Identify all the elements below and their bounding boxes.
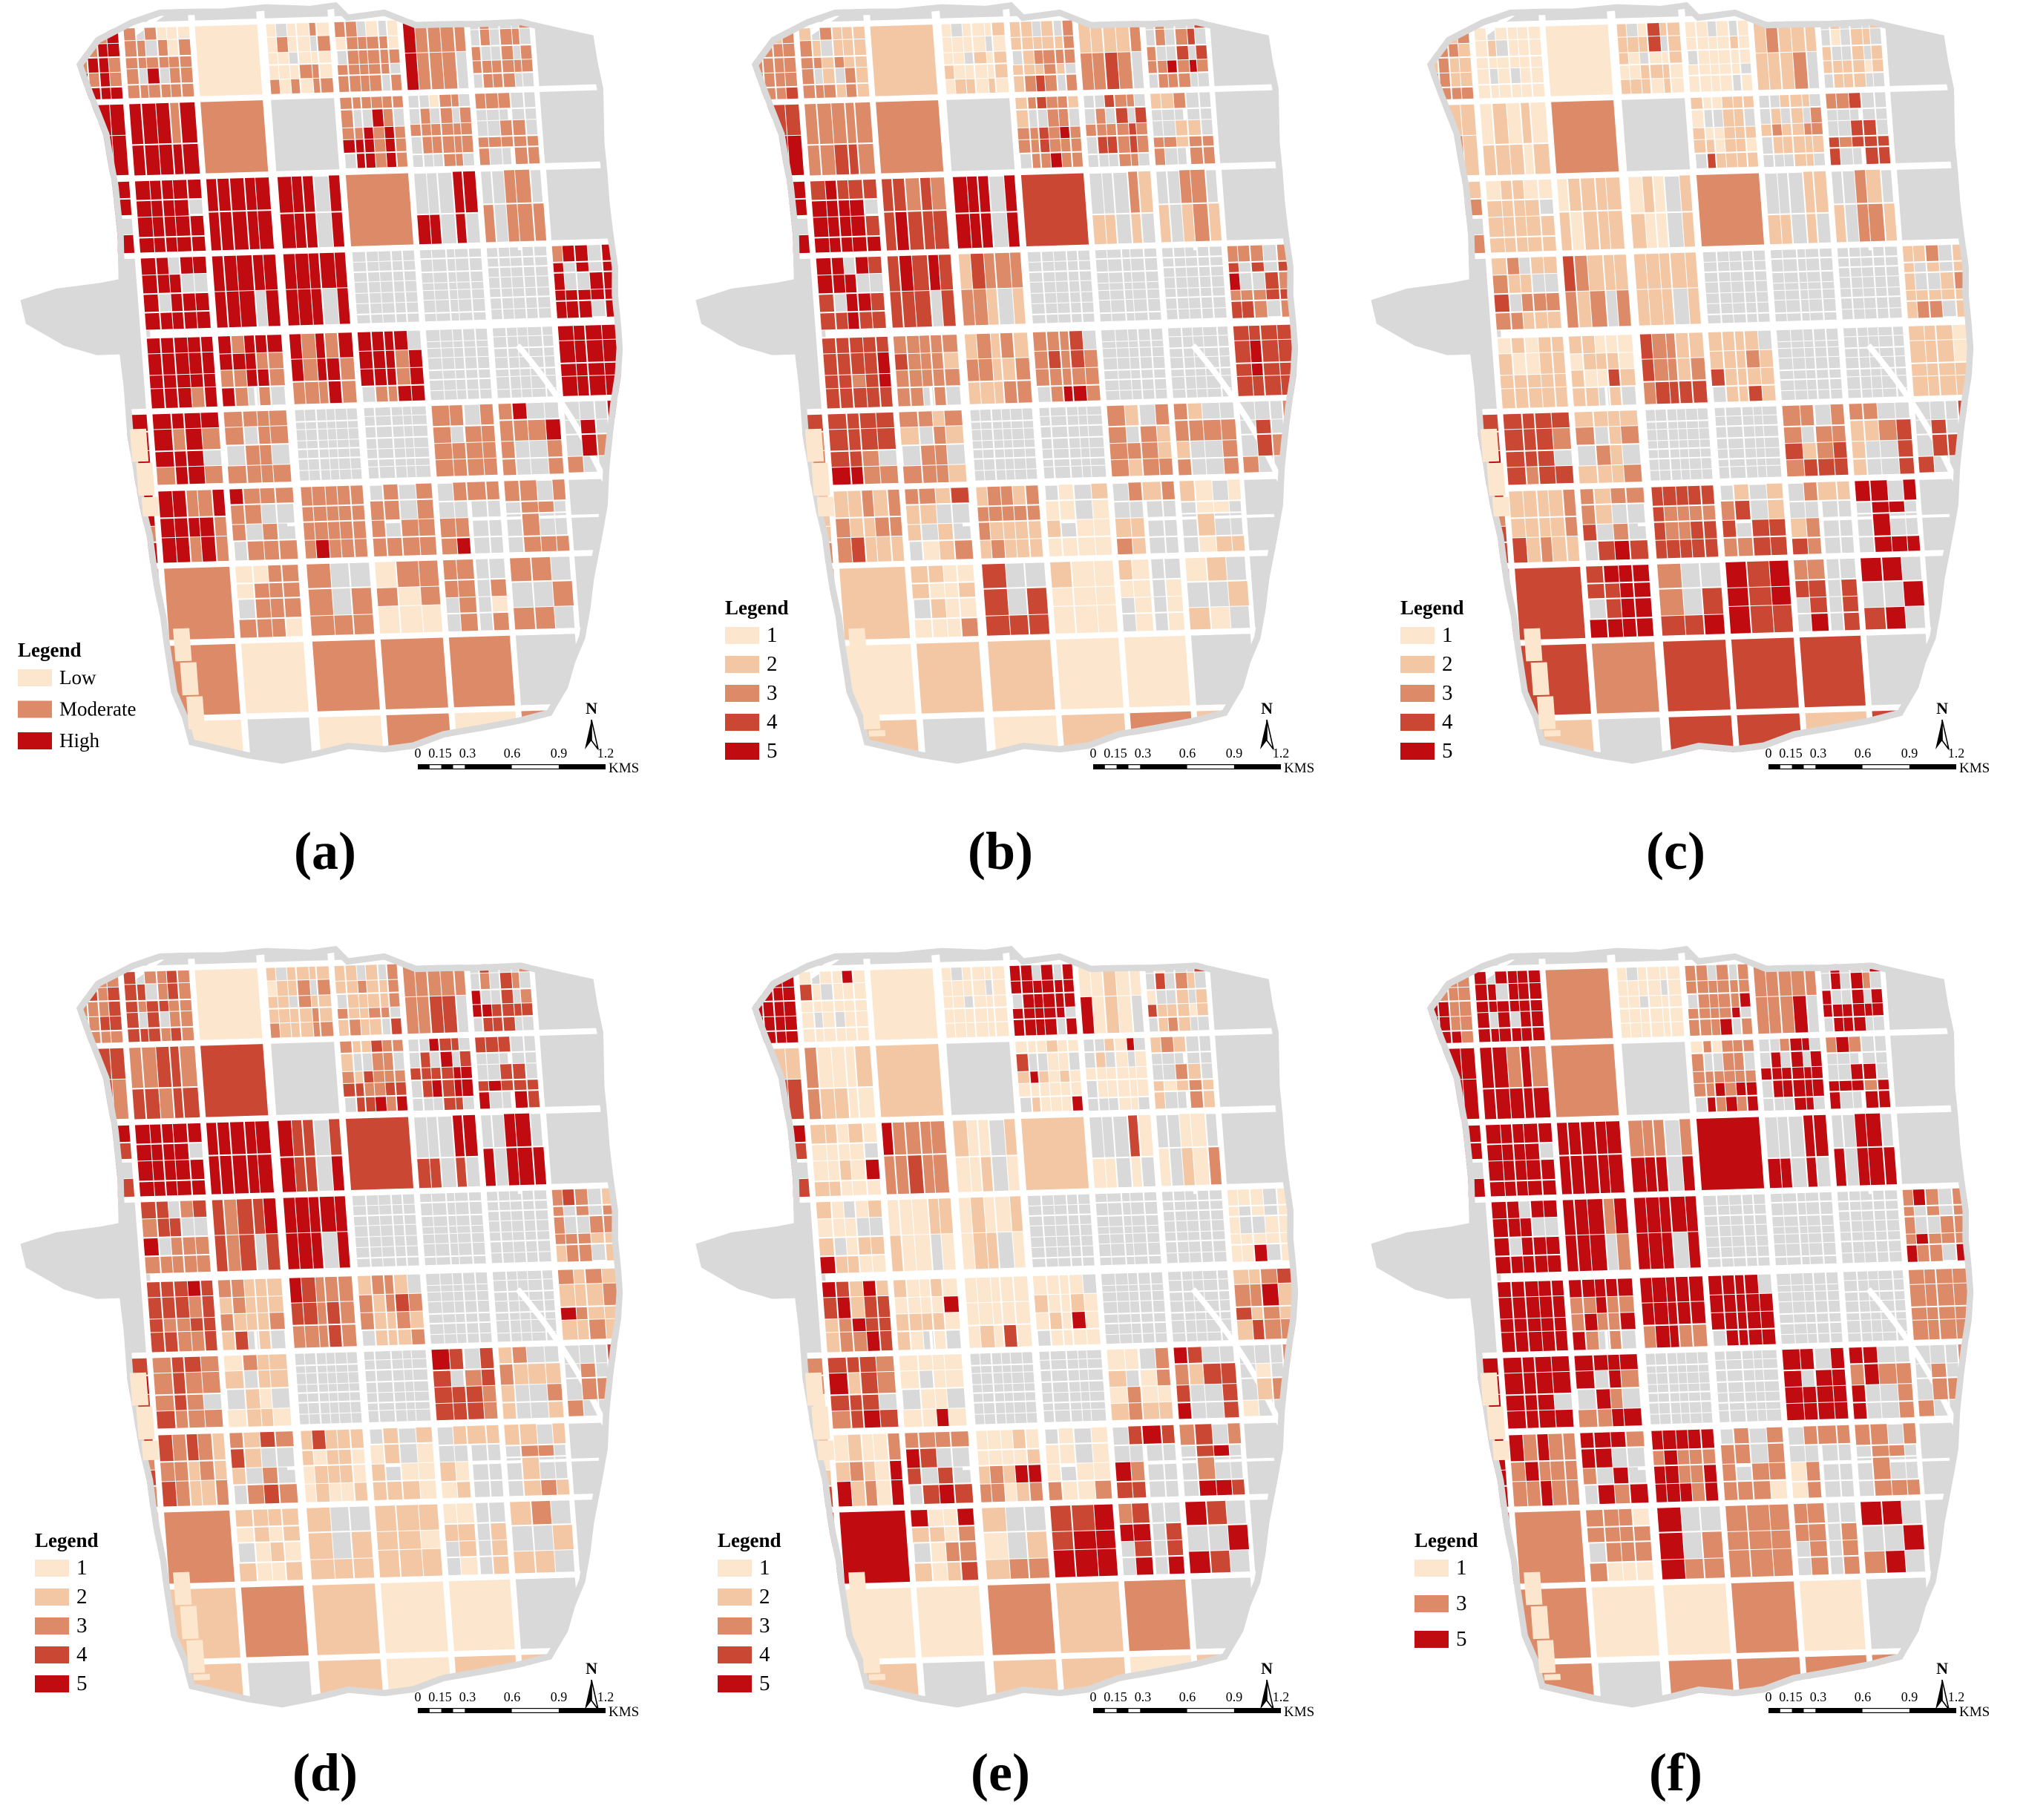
- svg-text:0.9: 0.9: [551, 746, 568, 760]
- svg-text:5: 5: [76, 1672, 88, 1695]
- svg-text:4: 4: [1442, 710, 1453, 734]
- svg-text:0: 0: [1090, 746, 1097, 760]
- svg-text:5: 5: [767, 739, 778, 763]
- svg-text:0.6: 0.6: [1855, 1689, 1872, 1704]
- svg-text:0.6: 0.6: [1179, 1689, 1196, 1704]
- svg-text:N: N: [586, 699, 597, 717]
- svg-text:Legend: Legend: [718, 1529, 781, 1551]
- svg-text:0: 0: [1766, 1689, 1772, 1704]
- svg-text:N: N: [1936, 699, 1948, 717]
- svg-text:Legend: Legend: [1400, 597, 1464, 619]
- svg-text:1.2: 1.2: [1273, 1689, 1290, 1704]
- svg-text:0.6: 0.6: [1855, 746, 1872, 760]
- svg-text:2: 2: [76, 1585, 88, 1609]
- svg-text:0: 0: [415, 746, 422, 760]
- svg-text:0.9: 0.9: [1226, 746, 1243, 760]
- svg-text:(e): (e): [971, 1743, 1030, 1802]
- svg-text:0: 0: [1766, 746, 1772, 760]
- svg-text:0.15: 0.15: [428, 746, 452, 760]
- svg-text:Legend: Legend: [18, 639, 82, 661]
- svg-text:1: 1: [759, 1556, 770, 1580]
- svg-text:0.9: 0.9: [1901, 1689, 1918, 1704]
- svg-text:0.9: 0.9: [551, 1689, 568, 1704]
- svg-text:0.9: 0.9: [1901, 746, 1918, 760]
- svg-text:(d): (d): [292, 1743, 358, 1802]
- svg-text:(a): (a): [294, 821, 356, 881]
- svg-text:0.15: 0.15: [1104, 746, 1127, 760]
- svg-text:Legend: Legend: [1414, 1529, 1478, 1551]
- svg-text:5: 5: [1442, 739, 1453, 763]
- svg-text:2: 2: [767, 652, 778, 676]
- svg-text:High: High: [59, 729, 100, 752]
- svg-text:0.6: 0.6: [1179, 746, 1196, 760]
- svg-text:2: 2: [1442, 652, 1453, 676]
- svg-text:4: 4: [759, 1643, 770, 1666]
- svg-text:N: N: [1936, 1659, 1948, 1678]
- svg-text:3: 3: [759, 1614, 770, 1637]
- svg-text:KMS: KMS: [609, 1704, 639, 1720]
- svg-text:0.15: 0.15: [1779, 746, 1803, 760]
- svg-text:0.3: 0.3: [1135, 1689, 1152, 1704]
- svg-text:Legend: Legend: [725, 597, 789, 619]
- svg-text:5: 5: [759, 1672, 770, 1695]
- svg-text:1.2: 1.2: [1948, 746, 1965, 760]
- svg-text:2: 2: [759, 1585, 770, 1609]
- svg-text:1.2: 1.2: [597, 1689, 614, 1704]
- svg-text:1: 1: [1442, 623, 1453, 647]
- svg-text:0: 0: [415, 1689, 422, 1704]
- svg-text:Moderate: Moderate: [59, 698, 136, 720]
- svg-text:3: 3: [1456, 1591, 1467, 1615]
- svg-text:Low: Low: [59, 666, 96, 689]
- svg-text:0.3: 0.3: [1810, 746, 1827, 760]
- svg-text:KMS: KMS: [609, 760, 639, 776]
- svg-text:1: 1: [767, 623, 778, 647]
- svg-text:(f): (f): [1649, 1743, 1702, 1802]
- svg-text:1: 1: [76, 1556, 88, 1580]
- svg-text:0.15: 0.15: [1104, 1689, 1127, 1704]
- svg-text:(b): (b): [968, 821, 1033, 881]
- svg-text:KMS: KMS: [1959, 1704, 1990, 1720]
- svg-text:1: 1: [1456, 1556, 1467, 1580]
- svg-text:Legend: Legend: [35, 1529, 99, 1551]
- svg-text:N: N: [586, 1659, 597, 1678]
- svg-text:0.15: 0.15: [1779, 1689, 1803, 1704]
- svg-text:5: 5: [1456, 1627, 1467, 1651]
- svg-text:3: 3: [1442, 681, 1453, 705]
- svg-text:(c): (c): [1646, 821, 1705, 881]
- svg-text:1.2: 1.2: [1948, 1689, 1965, 1704]
- svg-text:4: 4: [76, 1643, 88, 1666]
- svg-text:0.6: 0.6: [504, 746, 521, 760]
- svg-text:0.9: 0.9: [1226, 1689, 1243, 1704]
- svg-text:0.3: 0.3: [459, 746, 476, 760]
- svg-text:3: 3: [76, 1614, 88, 1637]
- svg-text:N: N: [1261, 699, 1273, 717]
- svg-text:1.2: 1.2: [1273, 746, 1290, 760]
- svg-text:4: 4: [767, 710, 778, 734]
- svg-text:0.3: 0.3: [1810, 1689, 1827, 1704]
- svg-text:0: 0: [1090, 1689, 1097, 1704]
- svg-text:KMS: KMS: [1284, 760, 1314, 776]
- svg-text:KMS: KMS: [1284, 1704, 1314, 1720]
- svg-text:0.3: 0.3: [459, 1689, 476, 1704]
- svg-text:0.6: 0.6: [504, 1689, 521, 1704]
- svg-text:3: 3: [767, 681, 778, 705]
- svg-text:0.3: 0.3: [1135, 746, 1152, 760]
- svg-text:1.2: 1.2: [597, 746, 614, 760]
- svg-text:KMS: KMS: [1959, 760, 1990, 776]
- svg-text:N: N: [1261, 1659, 1273, 1678]
- svg-text:0.15: 0.15: [428, 1689, 452, 1704]
